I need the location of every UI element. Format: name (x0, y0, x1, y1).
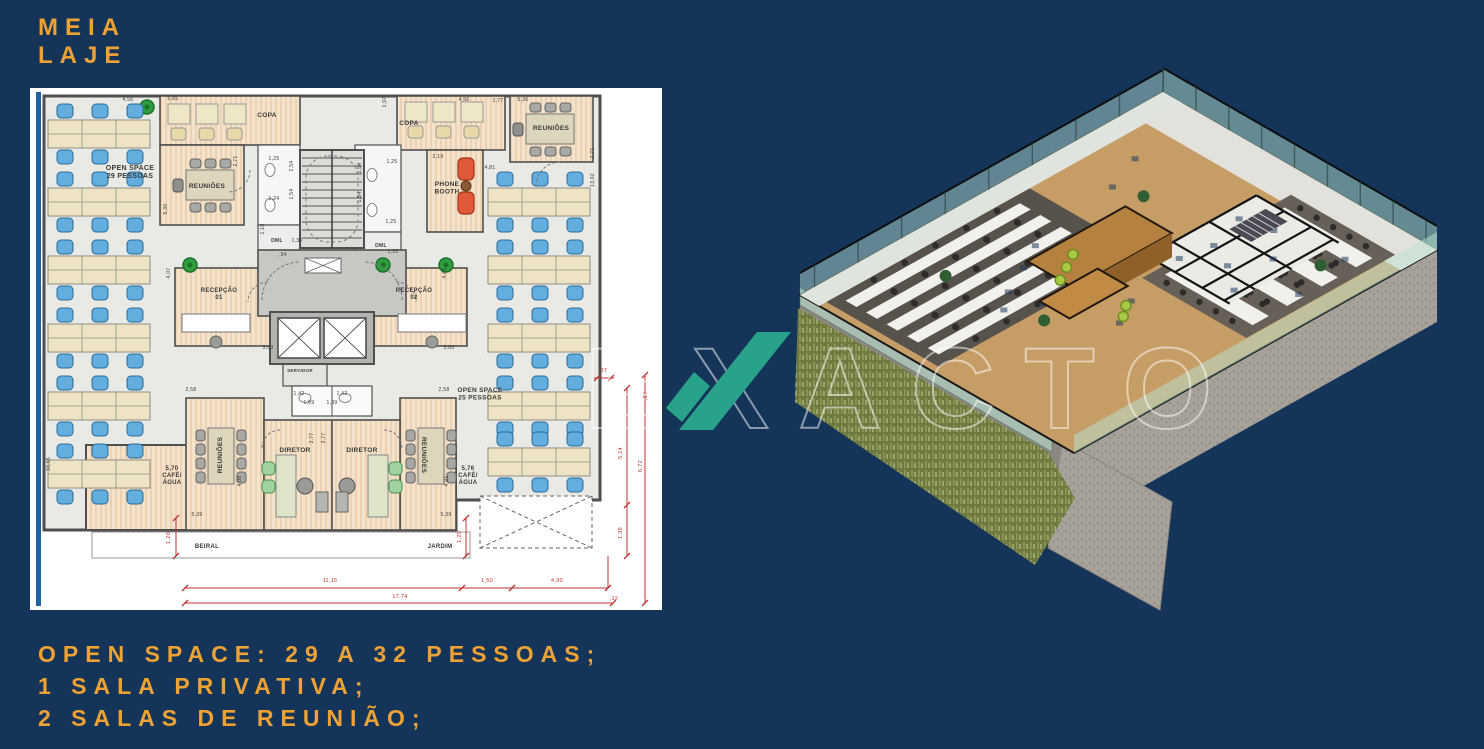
footer-line-salas-reuniao: 2 SALAS DE REUNIÃO; (38, 702, 601, 734)
render-group (795, 68, 1437, 610)
slide-canvas: MEIA LAJE OPEN SPACE29 PESSOASREUNIÕESCO… (0, 0, 1484, 749)
footer-line-open-space: OPEN SPACE: 29 A 32 PESSOAS; (38, 638, 601, 670)
footer-line-sala-privativa: 1 SALA PRIVATIVA; (38, 670, 601, 702)
floor-plan-3d-render (0, 0, 1484, 749)
footer-summary: OPEN SPACE: 29 A 32 PESSOAS; 1 SALA PRIV… (38, 638, 601, 734)
page-title: MEIA LAJE (38, 14, 127, 70)
